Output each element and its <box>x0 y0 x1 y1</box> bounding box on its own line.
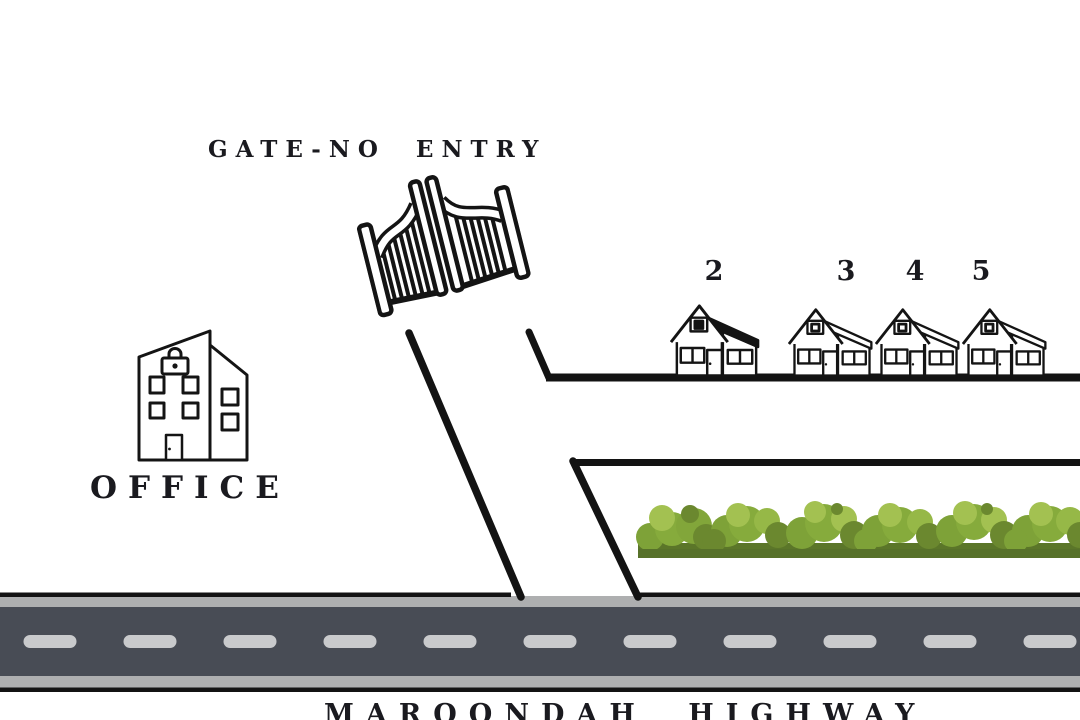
maroondah-highway-label: MAROONDAH HIGHWAY <box>324 699 926 720</box>
site-map: 2 3 4 5 GATE-NO ENTRY OFFICE MAROONDAH H… <box>0 0 1080 720</box>
office-building-icon <box>133 326 253 466</box>
office-door <box>166 435 182 460</box>
office-label: OFFICE <box>90 470 290 506</box>
house-icon <box>670 302 763 378</box>
house-number-5: 5 <box>966 256 996 287</box>
gate-no-entry-label: GATE-NO ENTRY <box>208 136 546 163</box>
house-number-2: 2 <box>699 256 729 287</box>
house-number-3: 3 <box>831 256 861 287</box>
highway-road <box>0 593 1080 693</box>
house-icon <box>788 306 876 378</box>
hedge-icon <box>632 497 1080 558</box>
house-number-4: 4 <box>900 256 930 287</box>
house-icon <box>875 306 963 378</box>
gate-icon <box>348 157 533 323</box>
house-icon <box>962 306 1050 378</box>
